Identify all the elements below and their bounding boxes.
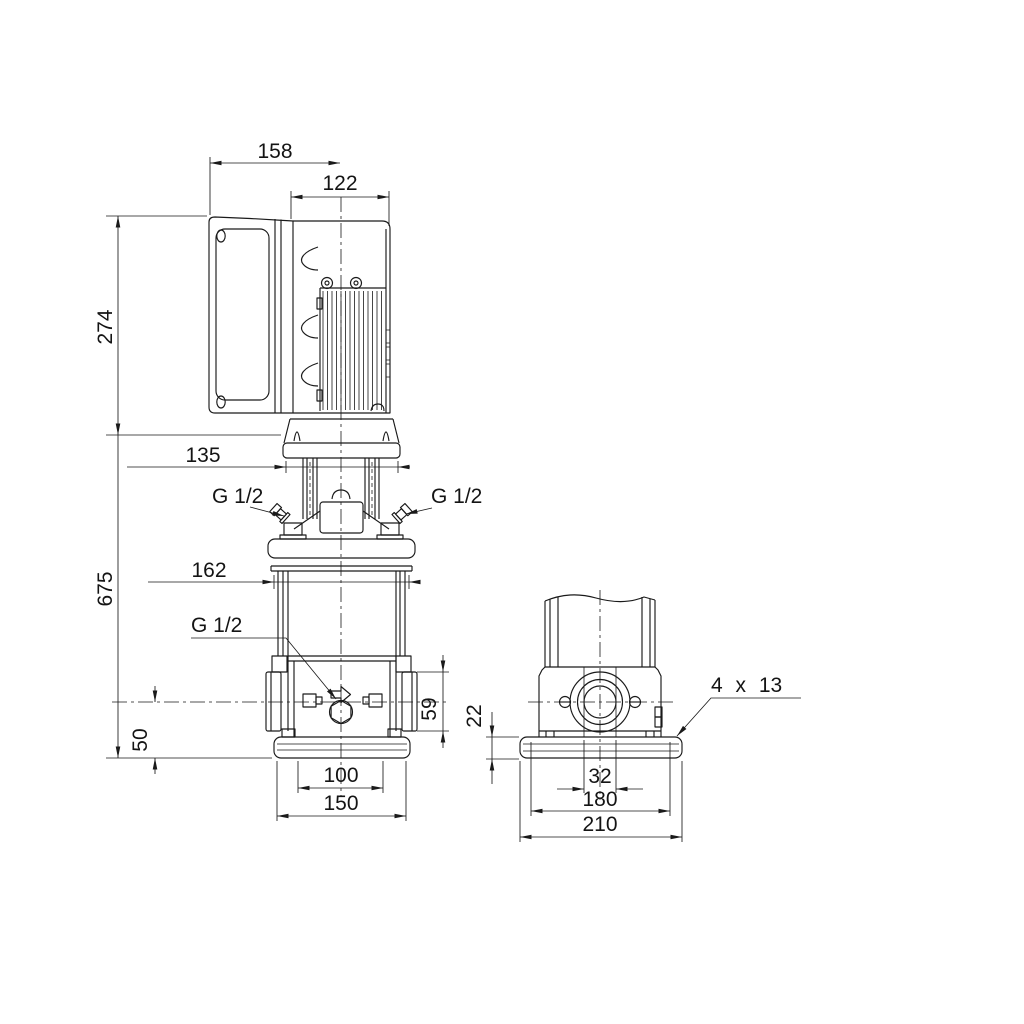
leader-drain [191,638,336,699]
dim-label-162: 162 [191,559,226,582]
dim-label-150: 150 [323,792,358,815]
dim-label-158: 158 [257,140,292,163]
drain-label: G 1/2 [191,614,242,637]
leader-base-holes [677,698,801,736]
dim-label-210: 210 [582,813,617,836]
side-base [520,737,682,758]
dim-label-180: 180 [582,788,617,811]
front-view: 158 122 274 675 135 162 50 59 100 150 G … [94,140,482,821]
dim-label-675: 675 [94,571,117,606]
motor-stool [283,419,400,458]
technical-drawing: 158 122 274 675 135 162 50 59 100 150 G … [0,0,1024,1024]
dim-label-135: 135 [185,444,220,467]
motor-and-control-box [209,217,390,413]
side-view: 22 32 180 210 4 x 13 [463,590,801,842]
dimension-lines-side [486,698,801,842]
dim-label-274: 274 [94,309,117,344]
pump-head [268,490,415,571]
plug-label-left: G 1/2 [212,485,263,508]
dim-label-32: 32 [588,765,611,788]
base-holes-label: 4 x 13 [711,674,782,697]
dim-label-50: 50 [129,728,152,751]
pump-column [266,571,417,737]
dim-label-122: 122 [322,172,357,195]
dim-label-22: 22 [463,704,486,727]
dim-label-100: 100 [323,764,358,787]
dim-label-59: 59 [418,697,441,720]
dimension-lines-front [106,157,449,821]
plug-label-right: G 1/2 [431,485,482,508]
